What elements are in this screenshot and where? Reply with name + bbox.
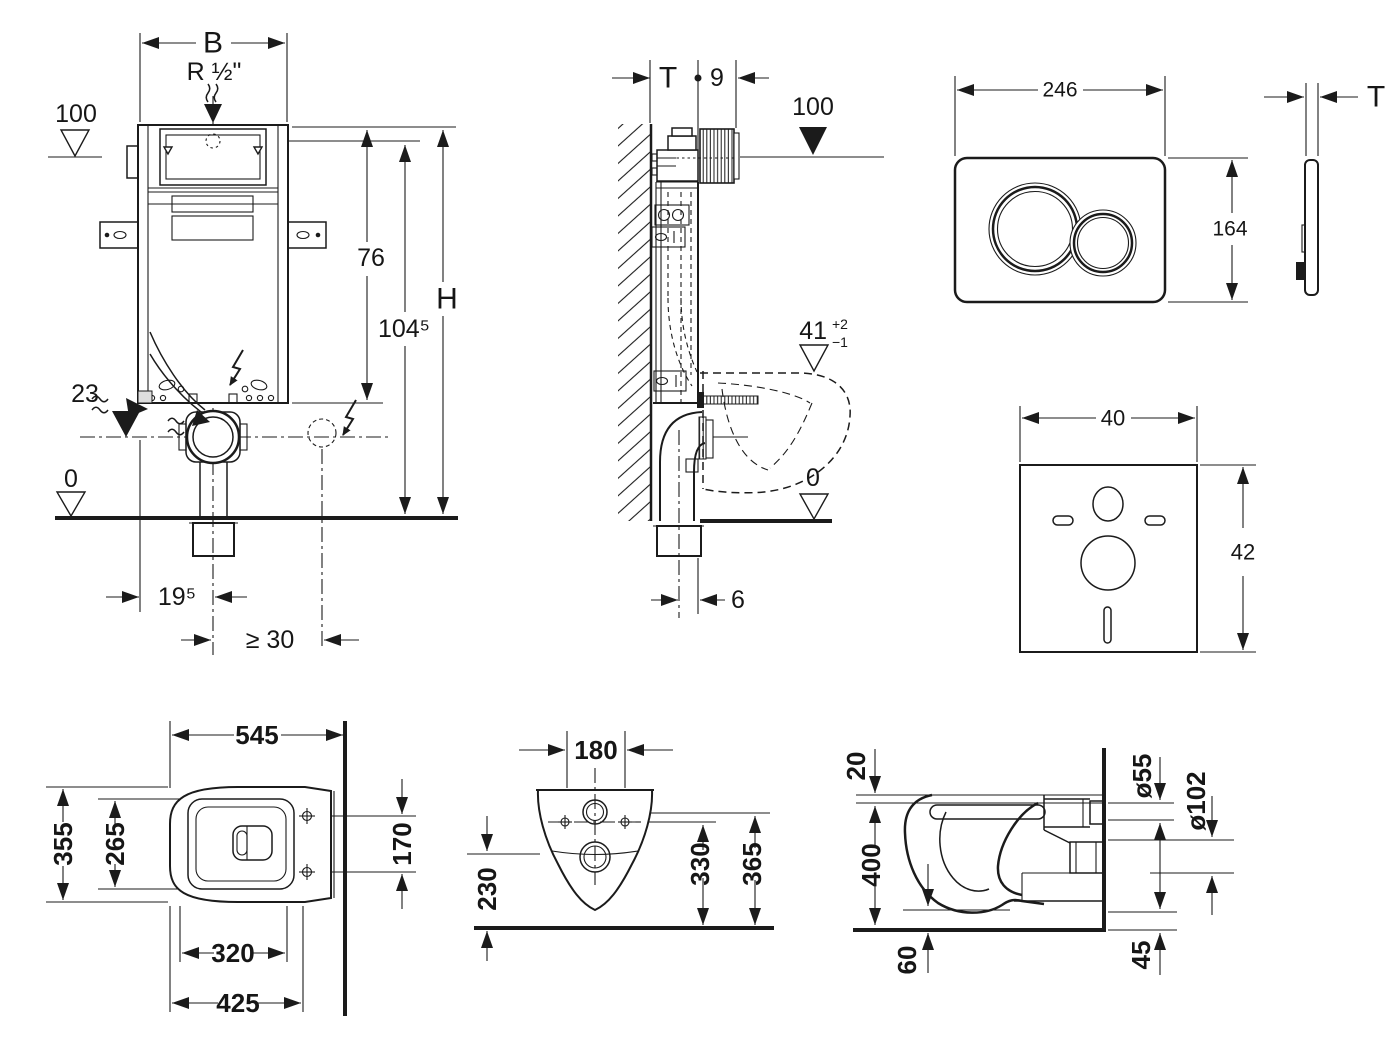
- wall-bracket-right: [288, 222, 326, 248]
- level-open-triangle-icon: [800, 494, 828, 519]
- dim-label-355: 355: [48, 822, 78, 865]
- level-open-triangle-icon: [61, 130, 89, 156]
- pan-side-view: 20 400 60 ø55 ø102 45: [841, 748, 1234, 975]
- dim-label-41-tol-minus: −1: [832, 334, 848, 350]
- pan-side-body: [856, 795, 1103, 913]
- dim-label-545: 545: [235, 720, 278, 750]
- dim-label-400: 400: [856, 843, 886, 886]
- installation-drawing-page: B R ½" 100 76 104⁵ H 18/23 5 5 23 0 19⁵ …: [0, 0, 1400, 1034]
- frame-front-view: B R ½" 100 76 104⁵ H 18/23 5 5 23 0 19⁵ …: [48, 27, 458, 656]
- wall-bracket-left: [100, 222, 138, 248]
- dim-label-40: 40: [1101, 406, 1125, 431]
- dim-label-104: 104⁵: [378, 315, 430, 343]
- sound-pad-view: 40 42: [1020, 406, 1256, 653]
- dim-label-365: 365: [737, 842, 767, 885]
- flush-plate-profile: [1264, 83, 1358, 295]
- dim-label-41-tol-plus: +2: [832, 316, 848, 332]
- frame-side-body: [652, 182, 700, 403]
- pan-rear-view: 180 230 330 365: [467, 731, 774, 961]
- flush-plate-view: 246 164 T: [955, 76, 1385, 302]
- pan-outline-dashed: [700, 371, 850, 493]
- pan-rear-body: [536, 768, 654, 910]
- dim-label-265: 265: [100, 822, 130, 865]
- level-open-triangle-icon: [57, 492, 85, 516]
- level-label-100-side: 100: [792, 93, 834, 121]
- filling-valve-assembly: [652, 128, 739, 183]
- electrical-connection-icon: [308, 400, 356, 447]
- flush-plate-front: [955, 158, 1165, 302]
- dim-label-9: 9: [710, 64, 724, 92]
- wall-section: [618, 124, 651, 521]
- dim-label-41: 41: [799, 317, 827, 345]
- dim-label-width: B: [203, 27, 223, 60]
- dim-label-o102: ø102: [1181, 771, 1211, 830]
- level-label-0: 0: [64, 465, 78, 493]
- dim-label-t: T: [659, 62, 677, 95]
- dim-label-330: 330: [685, 842, 715, 885]
- dim-label-20: 20: [841, 752, 871, 781]
- dim-label-42: 42: [1231, 540, 1255, 565]
- dim-label-180: 180: [574, 735, 617, 765]
- pan-top-view: 545 355 265 170 320 425: [46, 720, 417, 1018]
- dim-label-45: 45: [1126, 941, 1156, 970]
- dim-label-230: 230: [472, 867, 502, 910]
- dim-label-h: H: [436, 283, 458, 316]
- level-label-23: 23: [71, 380, 99, 408]
- level-open-triangle-icon: [800, 345, 828, 371]
- dim-label-t-plate: T: [1367, 81, 1385, 114]
- drain-outlet: [179, 411, 247, 556]
- frame-side-view: T 9 100 41 +2 −1 0 6: [612, 60, 884, 618]
- technical-drawing: B R ½" 100 76 104⁵ H 18/23 5 5 23 0 19⁵ …: [0, 0, 1400, 1034]
- inlet-label: R ½": [187, 58, 242, 86]
- level-label-100: 100: [55, 100, 97, 128]
- dim-label-6: 6: [731, 586, 745, 614]
- dim-label-170: 170: [387, 822, 417, 865]
- level-filled-triangle-icon: [112, 411, 140, 437]
- dim-label-76: 76: [357, 244, 385, 272]
- sound-pad-body: [1020, 465, 1197, 652]
- pan-top-body: [170, 787, 334, 902]
- dim-label-246: 246: [1042, 79, 1077, 102]
- dim-label-164: 164: [1212, 218, 1247, 241]
- frame-body: [100, 125, 326, 417]
- level-filled-triangle-icon: [799, 127, 827, 155]
- dim-label-o55: ø55: [1127, 754, 1157, 799]
- dim-label-60: 60: [892, 946, 922, 975]
- dim-label-425: 425: [216, 988, 259, 1018]
- mounting-rod: [697, 392, 758, 408]
- dim-label-320: 320: [211, 938, 254, 968]
- dim-label-ge30: ≥ 30: [246, 626, 294, 654]
- dim-label-195: 19⁵: [158, 583, 196, 611]
